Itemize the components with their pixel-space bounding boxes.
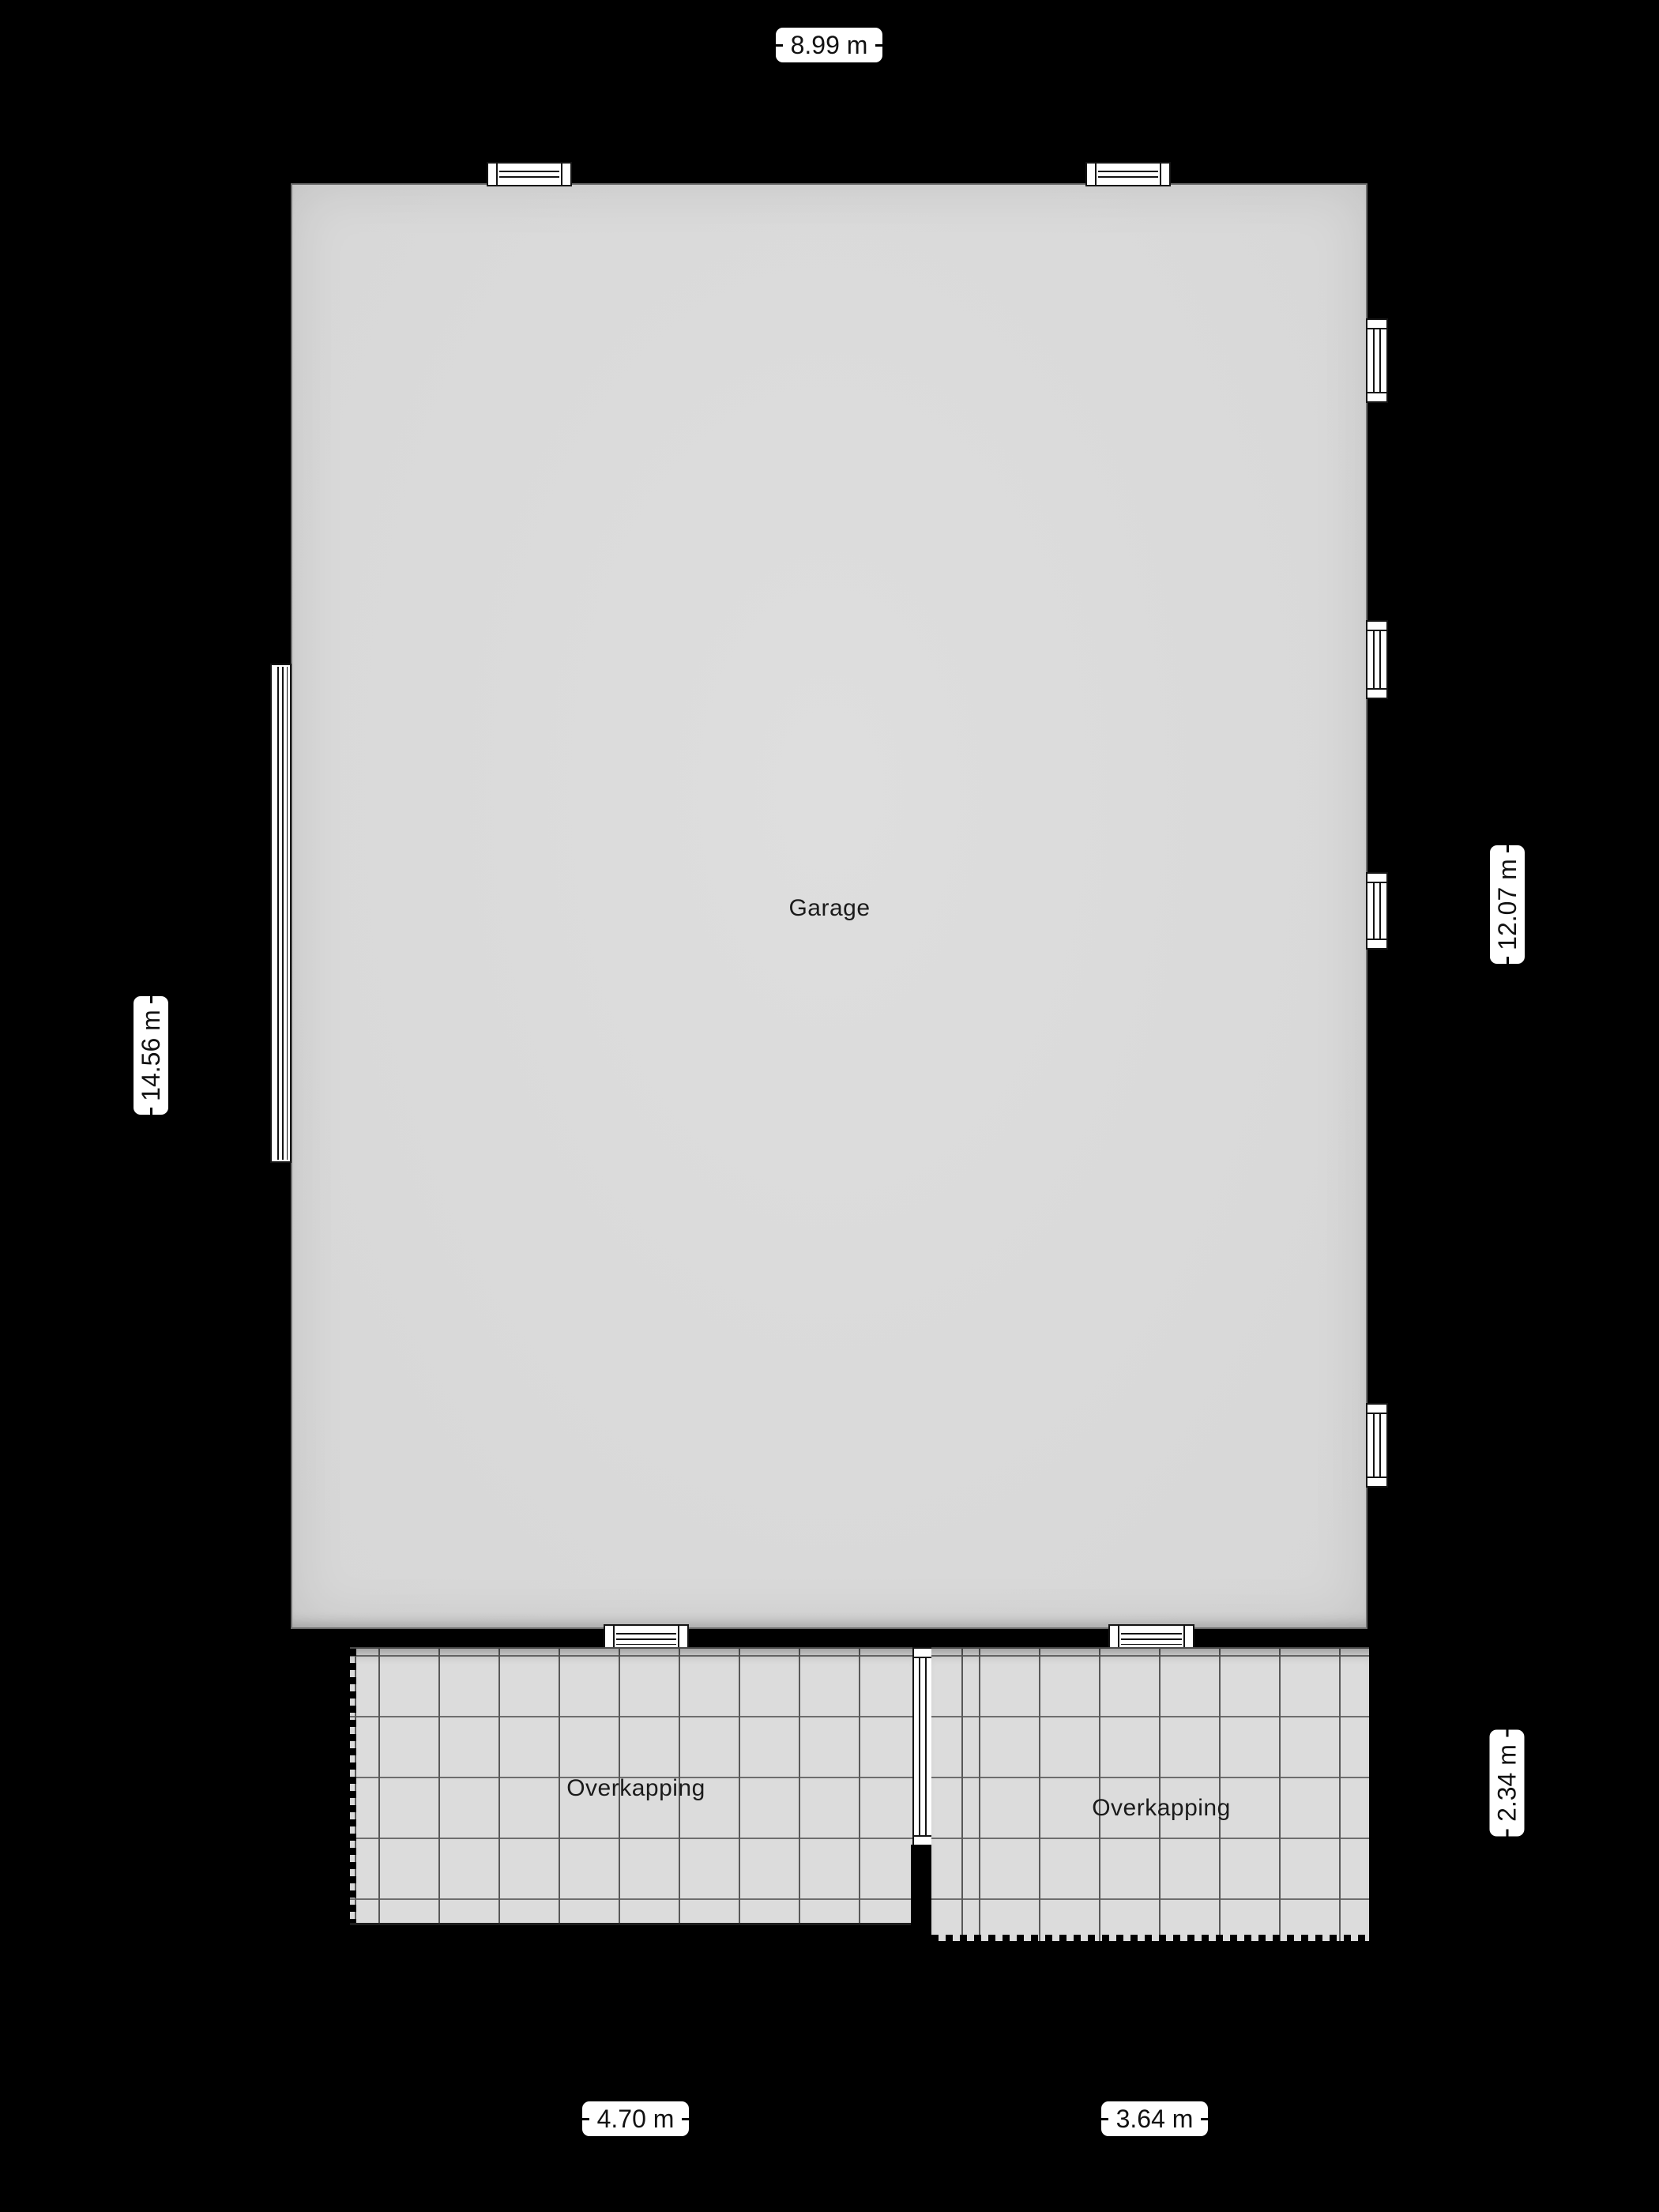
window-symbol-right-2 (1366, 620, 1388, 699)
window-frame-line (1367, 1477, 1386, 1478)
dimension-label-right-overkapping: 2.34 m (1490, 1730, 1525, 1837)
window-symbol-top-2 (1085, 162, 1171, 186)
open-edge-left (350, 1649, 356, 1923)
window-symbol-right-3 (1366, 872, 1388, 950)
dimension-label-top: 8.99 m (776, 28, 882, 62)
window-symbol-bottom-1 (604, 1624, 689, 1650)
room-label-overkapping-right: Overkapping (1043, 1795, 1280, 1822)
window-glass (616, 1629, 676, 1645)
dimension-label-right-garage: 12.07 m (1490, 845, 1525, 964)
dimension-label-bottom-right: 3.64 m (1101, 2101, 1208, 2136)
window-glass (274, 667, 288, 1160)
room-label-garage: Garage (750, 895, 908, 922)
window-glass (1373, 1414, 1381, 1477)
window-frame-line (678, 1626, 679, 1648)
window-symbol-right-1 (1366, 318, 1388, 403)
window-frame-line (1367, 688, 1386, 690)
window-frame-line (613, 1626, 615, 1648)
open-edge-bottom (931, 1935, 1369, 1941)
window-symbol-right-4 (1366, 1403, 1388, 1488)
window-frame-line (1118, 1626, 1119, 1648)
dimension-label-bottom-left: 4.70 m (582, 2101, 689, 2136)
window-frame-line (1183, 1626, 1185, 1648)
window-frame-line (914, 1835, 931, 1837)
room-overkapping-right (931, 1647, 1369, 1941)
window-glass (1121, 1629, 1182, 1645)
window-frame-line (1367, 939, 1386, 940)
dimension-label-left: 14.56 m (134, 996, 168, 1115)
window-frame-line (561, 164, 562, 185)
room-label-overkapping-left: Overkapping (517, 1775, 754, 1802)
window-glass (1373, 883, 1381, 939)
window-frame-line (1160, 164, 1161, 185)
window-frame-line (1095, 164, 1097, 185)
window-glass (919, 1658, 927, 1835)
window-glass (1373, 631, 1381, 688)
wall-divider (911, 1845, 933, 1937)
window-symbol-top-1 (487, 162, 572, 186)
floorplan-canvas: Garage (0, 0, 1659, 2212)
window-frame-line (496, 164, 498, 185)
window-symbol-left (270, 664, 292, 1163)
window-symbol-bottom-2 (1108, 1624, 1194, 1650)
window-glass (1098, 167, 1158, 182)
window-glass (1373, 329, 1381, 392)
window-glass (499, 167, 559, 182)
wall-bottom (291, 1629, 1369, 1647)
window-symbol-divider (912, 1647, 933, 1846)
window-frame-line (1367, 392, 1386, 393)
